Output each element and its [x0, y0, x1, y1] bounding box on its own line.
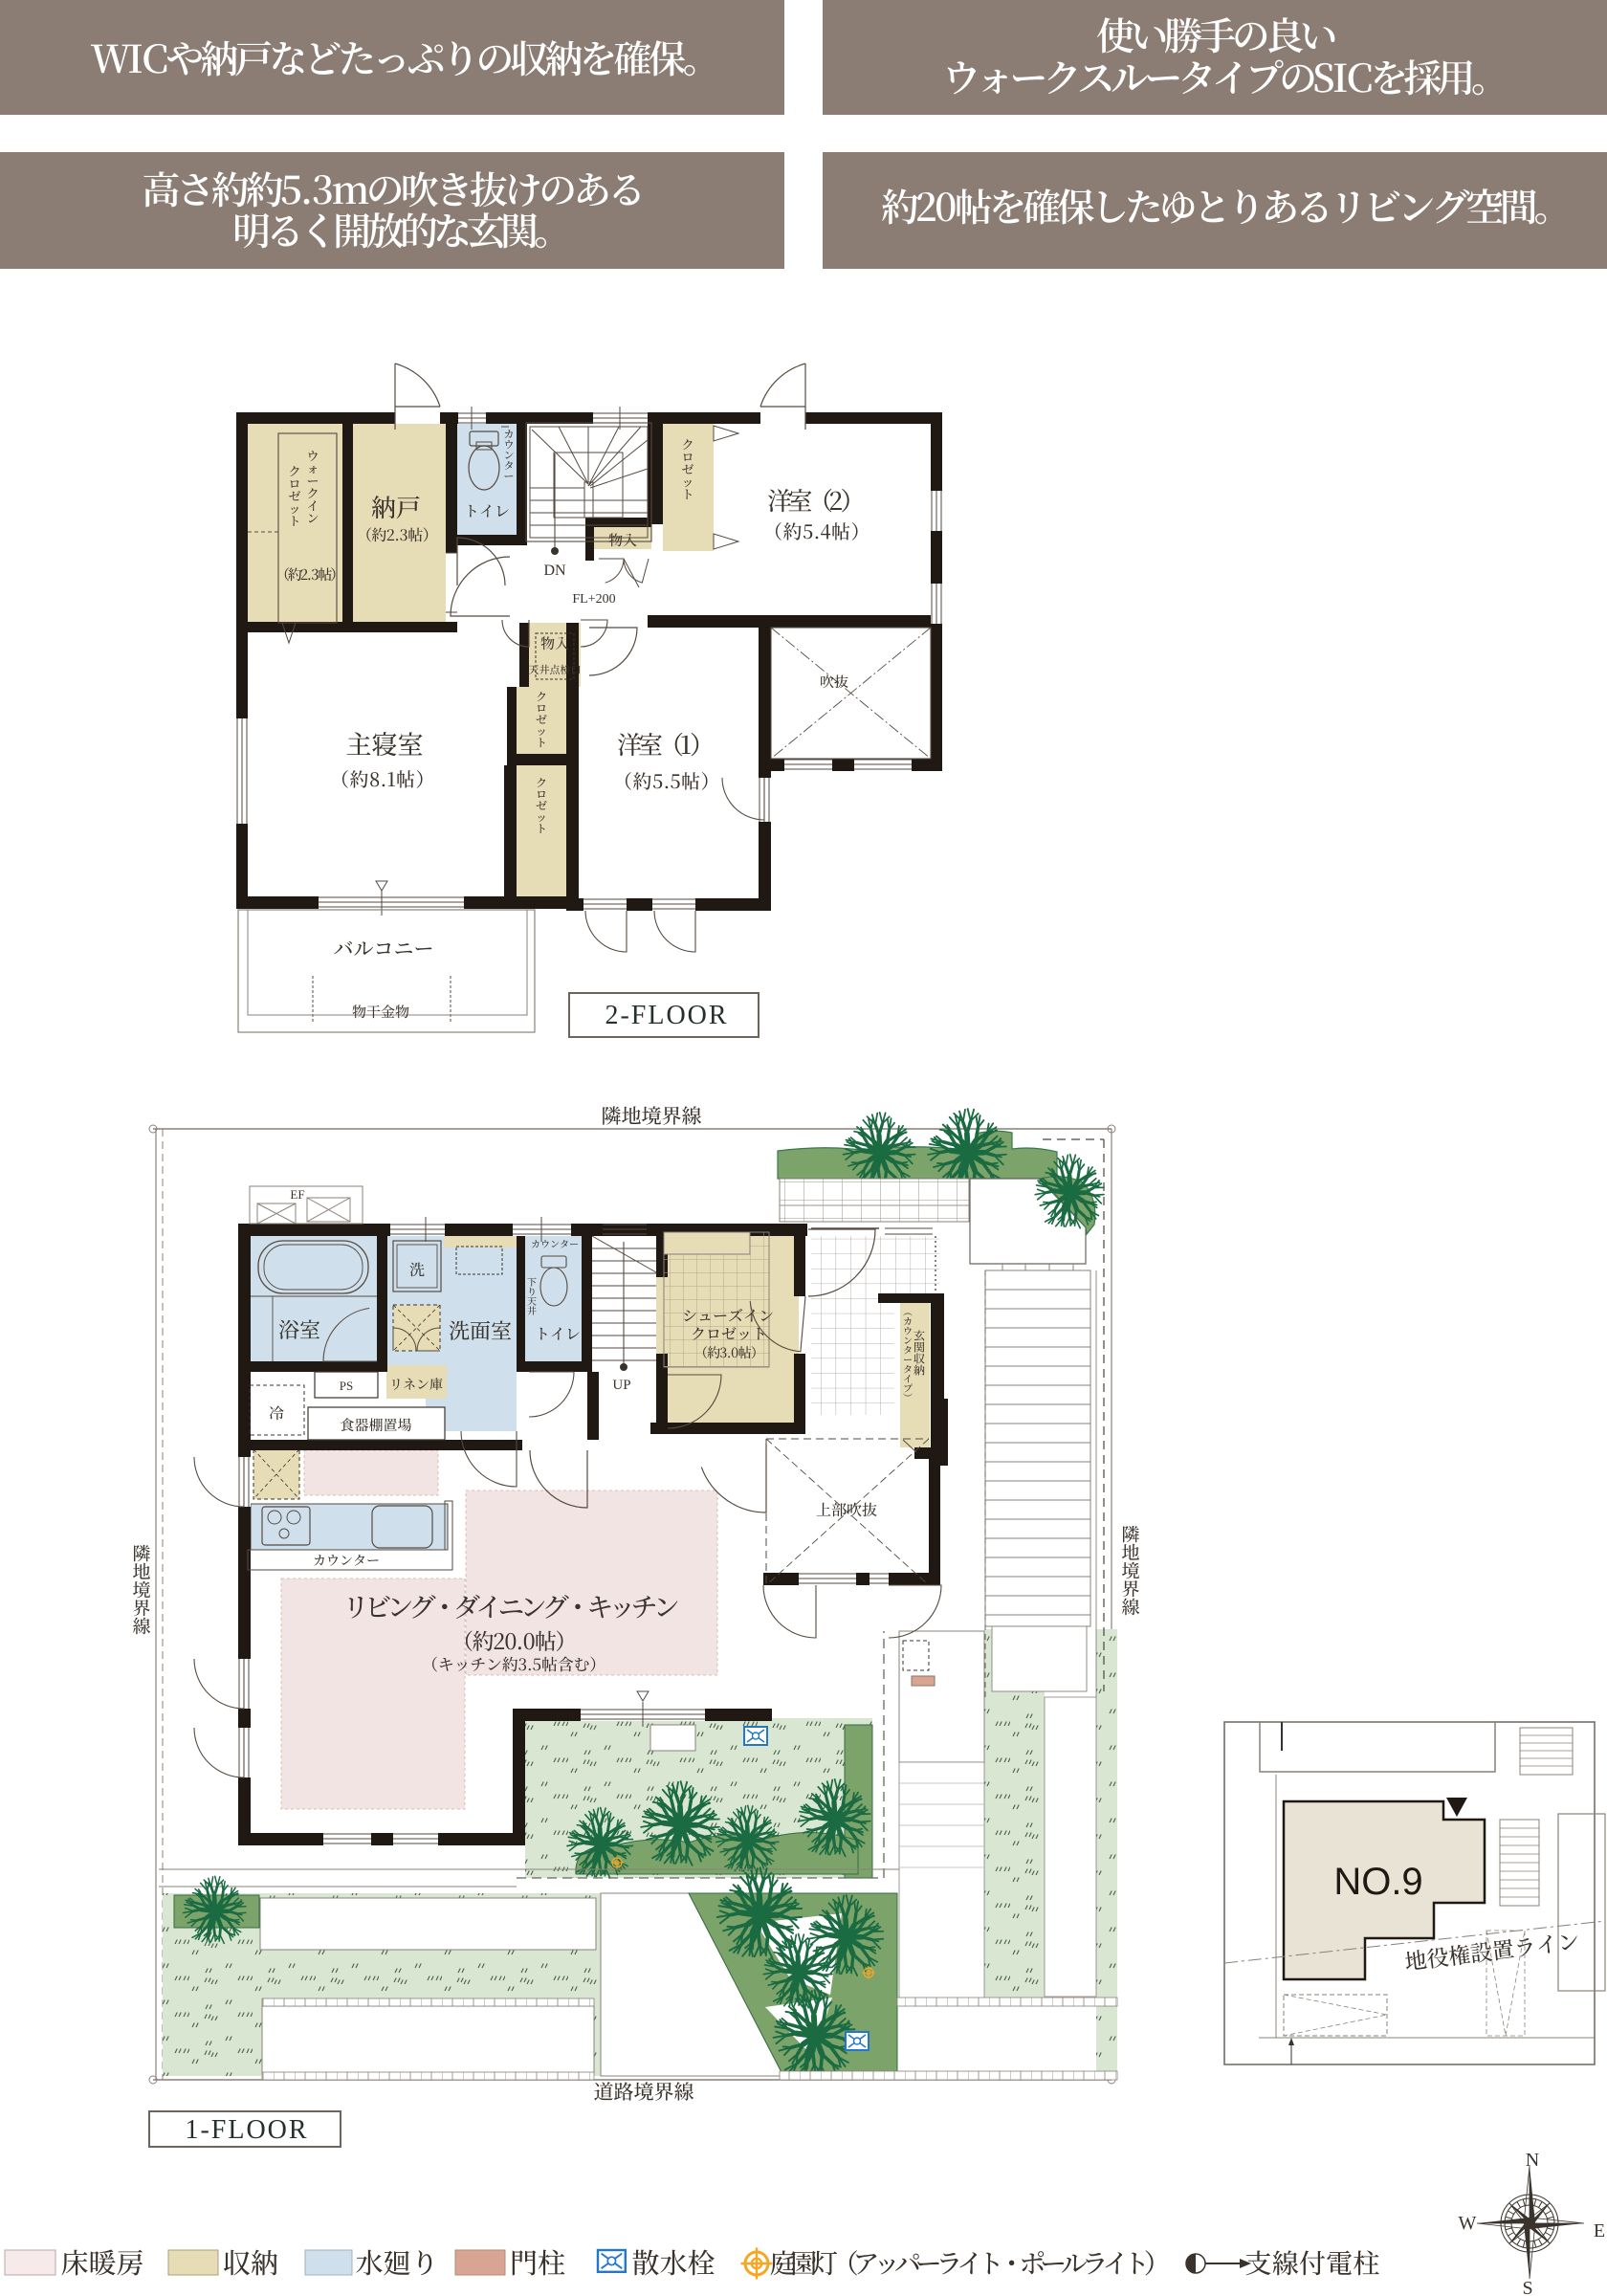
svg-text:NO.9: NO.9	[1333, 1861, 1422, 1903]
svg-text:E: E	[1594, 2220, 1605, 2241]
svg-text:1-FLOOR: 1-FLOOR	[185, 2115, 308, 2145]
svg-text:S: S	[1522, 2278, 1532, 2296]
svg-text:PS: PS	[340, 1379, 353, 1393]
svg-text:FL+200: FL+200	[572, 592, 615, 607]
svg-text:N: N	[1526, 2150, 1539, 2171]
svg-text:EF: EF	[290, 1187, 304, 1202]
svg-text:DN: DN	[543, 563, 566, 579]
svg-text:2-FLOOR: 2-FLOOR	[605, 1001, 728, 1030]
svg-text:W: W	[1459, 2213, 1477, 2234]
svg-text:UP: UP	[612, 1378, 630, 1393]
